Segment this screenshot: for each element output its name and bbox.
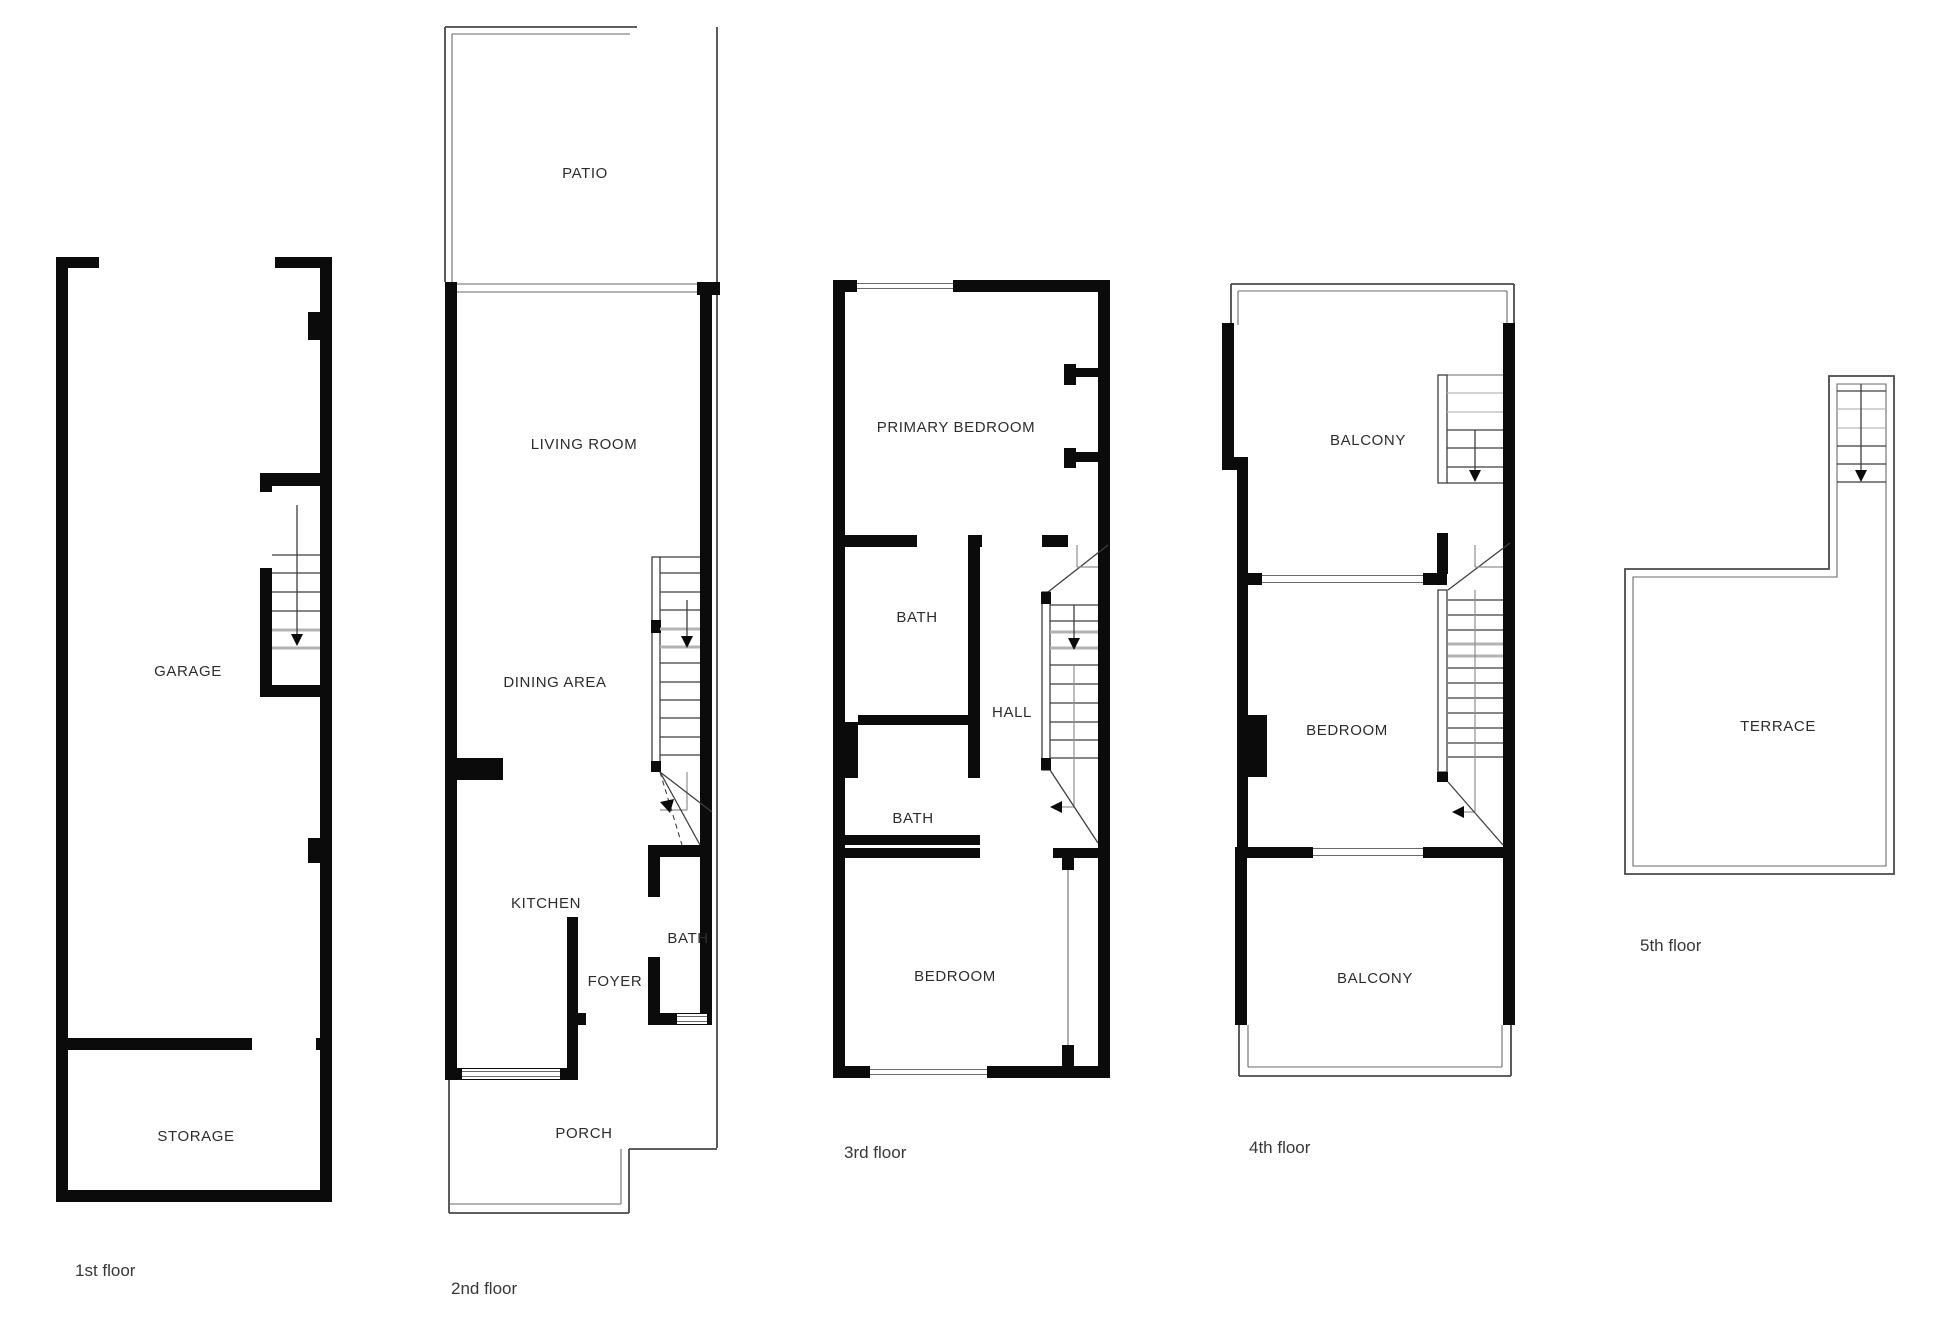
- room-label-patio: PATIO: [562, 165, 608, 182]
- caption-5th-floor: 5th floor: [1640, 936, 1702, 955]
- patio-outline: [445, 27, 717, 1148]
- room-label-living-room: LIVING ROOM: [531, 436, 638, 453]
- room-label-dining-area: DINING AREA: [503, 674, 606, 691]
- walls-1st: [56, 257, 332, 1202]
- stair-down-arrow-4th-upper: [1469, 470, 1481, 482]
- floor-plan-1st: GARAGE STORAGE 1st floor: [56, 257, 332, 1280]
- caption-3rd-floor: 3rd floor: [844, 1143, 907, 1162]
- walls-3rd: [833, 280, 1110, 1078]
- room-label-garage: GARAGE: [154, 663, 222, 680]
- stairs-5th: [1837, 384, 1886, 482]
- terrace-outline-outer: [1625, 376, 1894, 874]
- floor-plan-4th: BALCONY BEDROOM BALCONY 4th floor: [1222, 284, 1515, 1157]
- stairs-down-4th: [1437, 543, 1510, 845]
- room-label-balcony-top: BALCONY: [1330, 432, 1406, 449]
- room-label-bath-lower-3rd: BATH: [892, 810, 933, 827]
- stairs-1st: [272, 505, 320, 648]
- stair-exit-arrow-4th: [1452, 806, 1464, 818]
- floorplan-canvas: GARAGE STORAGE 1st floor: [0, 0, 1944, 1322]
- room-label-storage: STORAGE: [157, 1128, 234, 1145]
- room-label-terrace: TERRACE: [1740, 718, 1816, 735]
- balcony-rail-bottom: [1239, 1025, 1511, 1076]
- floor-plan-3rd: PRIMARY BEDROOM BATH HALL BATH BEDROOM 3…: [833, 280, 1110, 1162]
- stairs-3rd: [1041, 545, 1108, 843]
- room-label-bedroom-3rd: BEDROOM: [914, 968, 996, 985]
- floor-plan-5th: TERRACE 5th floor: [1625, 376, 1894, 955]
- stairs-up-4th: [1438, 375, 1503, 483]
- porch-outline: [449, 1080, 717, 1213]
- stair-exit-arrow-3rd: [1050, 801, 1062, 813]
- room-label-balcony-bottom: BALCONY: [1337, 970, 1413, 987]
- room-label-bath-2nd: BATH: [667, 930, 708, 947]
- room-label-foyer: FOYER: [588, 973, 643, 990]
- room-label-bath-upper-3rd: BATH: [896, 609, 937, 626]
- terrace-outline-inner: [1633, 384, 1886, 866]
- caption-4th-floor: 4th floor: [1249, 1138, 1311, 1157]
- room-label-primary-bedroom: PRIMARY BEDROOM: [877, 419, 1035, 436]
- stair-down-arrow-1st: [291, 634, 303, 646]
- room-label-kitchen: KITCHEN: [511, 895, 581, 912]
- room-label-porch: PORCH: [555, 1125, 612, 1142]
- caption-1st-floor: 1st floor: [75, 1261, 136, 1280]
- floorplan-drawing: GARAGE STORAGE 1st floor: [0, 0, 1944, 1322]
- stair-down-arrow-5th: [1855, 470, 1867, 482]
- room-label-hall: HALL: [992, 704, 1032, 721]
- walls-4th: [1222, 323, 1515, 1025]
- caption-2nd-floor: 2nd floor: [451, 1279, 517, 1298]
- balcony-rail-top: [1231, 284, 1514, 325]
- floor-plan-2nd: PATIO LIVING ROOM DINING AREA KITCHEN FO…: [445, 27, 720, 1298]
- room-label-bedroom-4th: BEDROOM: [1306, 722, 1388, 739]
